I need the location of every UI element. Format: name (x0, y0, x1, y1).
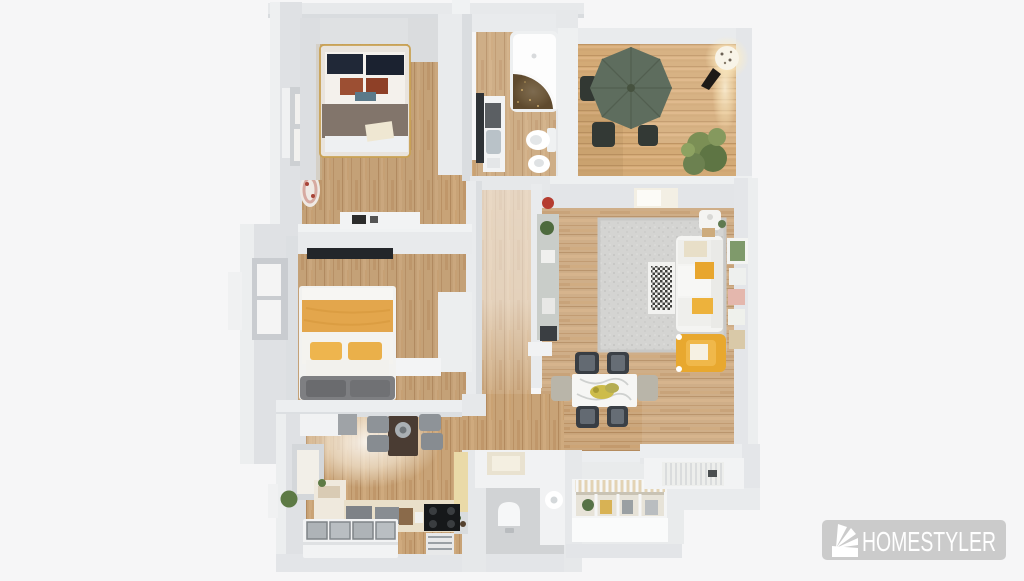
svg-text:HOMESTYLER: HOMESTYLER (862, 526, 996, 557)
